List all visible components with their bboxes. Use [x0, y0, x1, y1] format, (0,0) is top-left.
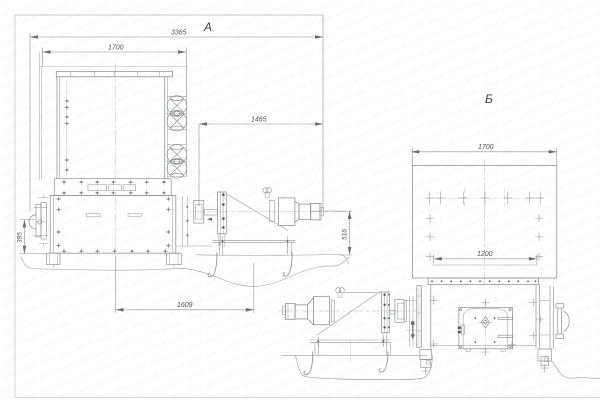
- svg-text:1465: 1465: [251, 117, 267, 124]
- svg-text:395: 395: [17, 232, 24, 243]
- svg-text:1200: 1200: [477, 251, 493, 258]
- svg-text:516: 516: [342, 229, 349, 240]
- svg-text:1609: 1609: [177, 302, 193, 309]
- svg-text:1700: 1700: [108, 45, 124, 52]
- svg-text:1700: 1700: [478, 144, 494, 151]
- svg-text:Б: Б: [485, 92, 493, 106]
- svg-text:А: А: [203, 20, 212, 34]
- svg-text:3365: 3365: [171, 30, 187, 37]
